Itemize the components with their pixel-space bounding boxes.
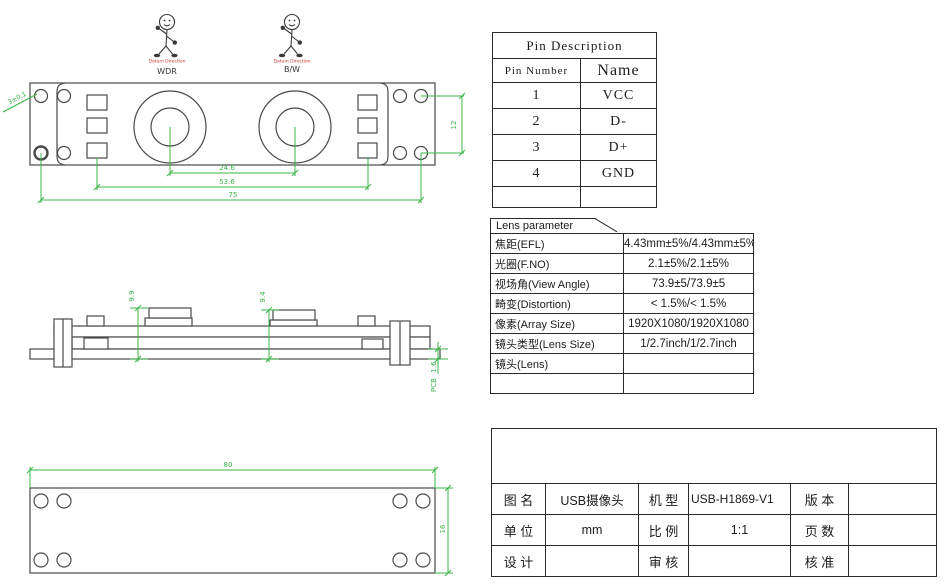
- mounting-hole: [57, 553, 71, 567]
- review-value: [689, 546, 791, 577]
- lens-param-value: 1/2.7inch/1/2.7inch: [624, 334, 754, 354]
- lens-param-label: 焦距(EFL): [491, 234, 624, 254]
- mounting-hole: [34, 494, 48, 508]
- back-view-dimensions: [27, 467, 453, 576]
- mounting-hole: [58, 90, 71, 103]
- component: [362, 339, 383, 349]
- wdr-caption: WDR: [157, 67, 177, 76]
- pcb-plate: [30, 349, 440, 359]
- led-window: [87, 118, 107, 133]
- lens-param-value: 2.1±5%/2.1±5%: [624, 254, 754, 274]
- lens-param-value: [624, 374, 754, 394]
- led-window: [87, 95, 107, 110]
- lens-param-label: 畸变(Distortion): [491, 294, 624, 314]
- lens-housing-left-flange: [145, 318, 192, 326]
- approve-value: [849, 546, 937, 577]
- component: [358, 316, 375, 326]
- pcb-label: PCB: [430, 378, 438, 392]
- pin-table-title: Pin Description: [493, 33, 657, 59]
- dim-hole-rows: 12: [450, 121, 458, 130]
- lens-housing-left: [149, 308, 191, 318]
- pin-number-cell: 2: [493, 109, 581, 135]
- review-label: 审 核: [639, 546, 689, 577]
- dim-pcb-thickness: 1.6: [430, 361, 438, 373]
- led-window: [87, 143, 107, 158]
- unit-value: mm: [546, 515, 639, 546]
- version-label: 版 本: [791, 484, 849, 515]
- pin-number-cell: 4: [493, 161, 581, 187]
- lens-parameter-table: 焦距(EFL) 4.43mm±5%/4.43mm±5% 光圈(F.NO) 2.1…: [490, 233, 754, 394]
- lens-parameter-tab: Lens parameter: [490, 218, 596, 234]
- lens-param-value: [624, 354, 754, 374]
- eye-icon: [289, 20, 291, 22]
- mounting-hole: [394, 90, 407, 103]
- mounting-hole: [35, 90, 48, 103]
- pin-name-cell: D+: [581, 135, 657, 161]
- front-view-dimension-labels: 3±0.1 24.6 53.6 75 12: [6, 90, 458, 199]
- pin-number-cell: 3: [493, 135, 581, 161]
- front-view: [30, 83, 435, 165]
- model-label: 机 型: [639, 484, 689, 515]
- stick-figure-wdr: Datum Direction WDR: [149, 15, 186, 77]
- mounting-hole: [34, 553, 48, 567]
- mounting-hole: [393, 494, 407, 508]
- side-view: [30, 308, 440, 367]
- hole-leader-note: 3±0.1: [6, 90, 27, 106]
- engineering-drawing-page: Datum Direction WDR Datum Direction B/W: [0, 0, 950, 584]
- lens-param-value: 73.9±5/73.9±5: [624, 274, 754, 294]
- pin-description-table: Pin Description Pin Number Name 1 VCC 2 …: [492, 32, 657, 208]
- datum-direction-label: Datum Direction: [149, 59, 186, 65]
- pin-number-cell: 1: [493, 83, 581, 109]
- drawing-name-label: 图 名: [492, 484, 546, 515]
- lens-housing-right: [273, 310, 315, 320]
- approve-label: 核 准: [791, 546, 849, 577]
- empty-cell: [581, 187, 657, 208]
- pin-name-cell: VCC: [581, 83, 657, 109]
- lens-param-label: [491, 374, 624, 394]
- lens-param-value: 1920X1080/1920X1080: [624, 314, 754, 334]
- lens-param-label: 视场角(View Angle): [491, 274, 624, 294]
- dim-back-width: 80: [224, 461, 233, 469]
- dim-back-height: 16: [439, 524, 447, 533]
- led-window: [358, 95, 377, 110]
- lens-housing-right-flange: [270, 320, 317, 326]
- right-bracket-outline: [380, 83, 388, 165]
- lens-tab-slant-line: [594, 218, 617, 232]
- model-value: USB-H1869-V1: [689, 484, 791, 515]
- scale-label: 比 例: [639, 515, 689, 546]
- component: [84, 338, 108, 349]
- mounting-hole: [57, 494, 71, 508]
- version-value: [849, 484, 937, 515]
- dim-led-columns: 53.6: [219, 178, 235, 186]
- back-view-dimension-labels: 80 16: [224, 461, 447, 533]
- pin-name-cell: D-: [581, 109, 657, 135]
- lens-param-label: 像素(Array Size): [491, 314, 624, 334]
- dim-hole-span: 75: [229, 191, 238, 199]
- design-label: 设 计: [492, 546, 546, 577]
- led-window: [358, 143, 377, 158]
- dim-height-right: 9.4: [259, 291, 267, 303]
- camera-module-drawing: Datum Direction WDR Datum Direction B/W: [0, 0, 490, 584]
- holder-frame: [54, 326, 430, 337]
- bw-caption: B/W: [284, 65, 300, 74]
- pages-value: [849, 515, 937, 546]
- lens-param-value: 4.43mm±5%/4.43mm±5%: [624, 234, 754, 254]
- design-value: [546, 546, 639, 577]
- mounting-hole: [394, 147, 407, 160]
- pin-number-header: Pin Number: [493, 59, 581, 83]
- dim-height-left: 9.9: [128, 290, 136, 301]
- eye-icon: [169, 20, 171, 22]
- lens-param-label: 镜头类型(Lens Size): [491, 334, 624, 354]
- mounting-hole: [58, 147, 71, 160]
- lens-param-value: < 1.5%/< 1.5%: [624, 294, 754, 314]
- lens-param-label: 镜头(Lens): [491, 354, 624, 374]
- mounting-hole: [393, 553, 407, 567]
- datum-direction-label: Datum Direction: [274, 59, 311, 65]
- empty-cell: [493, 187, 581, 208]
- pin-name-header: Name: [581, 59, 657, 83]
- title-block-empty-area: [492, 429, 937, 484]
- eye-icon: [294, 20, 296, 22]
- unit-label: 单 位: [492, 515, 546, 546]
- component: [87, 316, 104, 326]
- left-bracket-outline: [57, 83, 65, 165]
- title-block: 图 名 USB摄像头 机 型 USB-H1869-V1 版 本 单 位 mm 比…: [491, 428, 937, 577]
- pages-label: 页 数: [791, 515, 849, 546]
- mounting-hole: [416, 494, 430, 508]
- dim-lens-centers: 24.6: [219, 164, 235, 172]
- pin-name-cell: GND: [581, 161, 657, 187]
- lens-param-label: 光圈(F.NO): [491, 254, 624, 274]
- eye-icon: [164, 20, 166, 22]
- drawing-name-value: USB摄像头: [546, 484, 639, 515]
- scale-value: 1:1: [689, 515, 791, 546]
- led-window: [358, 118, 377, 133]
- stick-figure-bw: Datum Direction B/W: [274, 15, 311, 75]
- back-view: [30, 488, 435, 573]
- mounting-hole: [416, 553, 430, 567]
